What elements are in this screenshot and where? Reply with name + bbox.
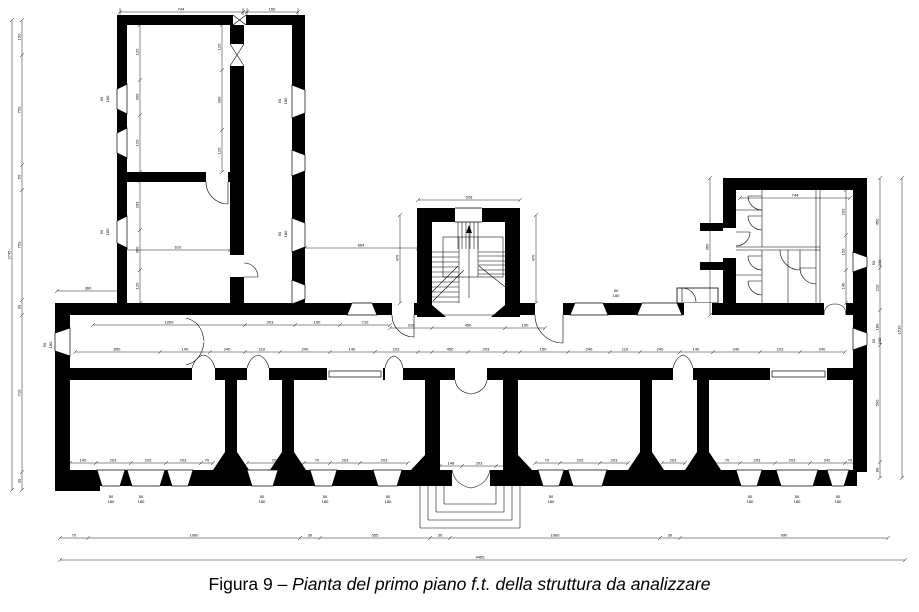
dimension-label: 590 [875, 399, 880, 406]
dimension-chain: 1510 [897, 176, 904, 480]
window-opening [292, 150, 305, 176]
window-opening [97, 470, 125, 486]
dimension-label: 203 [135, 201, 140, 208]
annotation-label: 180 [259, 499, 266, 504]
door-gap [392, 303, 414, 315]
window-opening [347, 303, 377, 315]
dimension-label: 528 [466, 195, 473, 200]
dimension-label: 120 [135, 139, 140, 146]
dimension-label: 203 [476, 461, 483, 466]
dimension-label: 110 [622, 347, 629, 352]
door-swing [673, 355, 693, 368]
annotation-label: 180 [794, 499, 801, 504]
dimension-label: 240 [733, 347, 740, 352]
dimension-label: 450 [465, 323, 472, 328]
window-opening [167, 470, 193, 486]
dimension-label: 4465 [476, 555, 486, 560]
dimension-label: 203 [393, 347, 400, 352]
dimension-label: 203 [789, 458, 796, 463]
dimension-chain: 45021018059080 [875, 176, 882, 480]
dimension-label: 203 [577, 458, 584, 463]
dimension-label: 990 [781, 533, 788, 538]
door-gap [452, 470, 490, 486]
annotation-label: 180 [283, 97, 288, 104]
dimension-chain: 318450100 [388, 323, 547, 330]
dimension-label: 70 [72, 533, 77, 538]
window-opening [736, 470, 762, 486]
dimension-label: 555 [372, 533, 379, 538]
dimension-label: 390 [217, 96, 222, 103]
dimension-label: 150 [540, 347, 547, 352]
dimension-chain: 203390120 [135, 179, 142, 305]
dimension-label: 140 [349, 347, 356, 352]
dimension-label: 710 [17, 389, 22, 396]
dimension-label: 360 [85, 286, 92, 291]
door-gap [385, 368, 403, 380]
dimension-label: 390 [135, 246, 140, 253]
door-swing [192, 355, 215, 368]
dimension-label: 30 [17, 478, 22, 483]
dimension-label: 110 [259, 347, 266, 352]
annotation-label: 180 [105, 228, 110, 235]
door-swing [206, 182, 228, 204]
dimension-label: 203 [180, 458, 187, 463]
annotation-label: 50 [277, 231, 282, 236]
exterior-walls [55, 15, 867, 491]
classroom-piers [213, 380, 721, 470]
annotation-label: 180 [48, 341, 53, 348]
annotation-label: 180 [613, 293, 620, 298]
dimension-chain: 70203203 [533, 458, 630, 465]
dimension-label: 240 [819, 347, 826, 352]
dimension-label: 140 [182, 347, 189, 352]
door-swing [748, 256, 762, 270]
dimension-label: 150 [841, 248, 846, 255]
annotation-label: 180 [385, 499, 392, 504]
door-gap [192, 368, 215, 380]
annotation-label: 50 [277, 98, 282, 103]
dimension-chain: 4465 [58, 555, 907, 562]
dimension-label: 710 [362, 320, 369, 325]
door-gap [455, 368, 487, 380]
dimension-label: 30 [438, 533, 443, 538]
dimension-chain: 14020320320370 [68, 458, 215, 465]
door-gap [247, 368, 269, 380]
window-opening [373, 470, 402, 486]
dimension-chain: 360 [55, 286, 122, 293]
window-opening [637, 303, 682, 315]
dimension-chain: 664 [303, 243, 420, 250]
dimension-label: 203 [483, 347, 490, 352]
door-swing [455, 380, 487, 394]
dimension-label: 744 [792, 193, 799, 198]
dimension-label: 30 [17, 304, 22, 309]
dimension-label: 70 [725, 458, 730, 463]
dimension-label: 850 [114, 347, 121, 352]
door-gap [673, 368, 693, 380]
annotation-label: 180 [108, 499, 115, 504]
window-opening [568, 470, 607, 486]
door-swing [247, 355, 269, 368]
door-swing [244, 263, 258, 277]
dimension-label: 750 [17, 106, 22, 113]
door-gap [684, 303, 712, 315]
dimension-chain: 203150140 [841, 188, 848, 305]
dimension-label: 240 [302, 347, 309, 352]
door-gap [230, 255, 244, 277]
dimension-label: 120 [217, 43, 222, 50]
window-strip-frame [329, 371, 381, 377]
dimension-chain: 2745 [7, 18, 14, 492]
dimension-chain: 120390120 [135, 23, 142, 174]
dimension-chain: 120390120 [217, 23, 224, 174]
dimension-chain: 470 [395, 213, 402, 305]
dimension-label: 70 [848, 458, 853, 463]
annotation-label: 180 [138, 499, 145, 504]
dimension-label: 120 [135, 48, 140, 55]
dimension-label: 180 [875, 323, 880, 330]
window-opening [570, 303, 608, 315]
window-opening [247, 470, 278, 486]
dimension-label: 1060 [551, 533, 561, 538]
page: 7441505287446646103601269203150710318450… [0, 0, 919, 612]
dimension-label: 150 [269, 7, 276, 12]
annotation-label: 240 [877, 337, 882, 344]
dimension-label: 240 [224, 347, 231, 352]
annotation-label: 50 [99, 96, 104, 101]
dimension-label: 450 [447, 347, 454, 352]
dimension-chain: 7010603055530106030990 [58, 533, 890, 540]
annotation-label: 180 [105, 95, 110, 102]
door-gap [206, 172, 228, 182]
dimension-chain: 8501402401102401402034502031502401102401… [73, 347, 847, 354]
dimension-label: 150 [314, 320, 321, 325]
dimension-label: 148 [504, 461, 511, 466]
dimension-label: 242 [824, 458, 831, 463]
door-gap [824, 303, 846, 315]
dimension-label: 470 [395, 254, 400, 261]
door-swing [800, 268, 816, 284]
dimension-label: 70 [205, 458, 210, 463]
figure-caption: Figura 9 – Pianta del primo piano f.t. d… [0, 574, 919, 595]
dimension-chain: 150750507503071030 [17, 18, 24, 492]
interior-partitions [677, 190, 820, 303]
figure-caption-prefix: Figura 9 – [209, 574, 293, 594]
annotation-label: 50 [42, 342, 47, 347]
window-opening [310, 470, 337, 486]
dimension-label: 210 [875, 284, 880, 291]
window-opening [117, 84, 127, 114]
dimension-label: 1060 [190, 533, 200, 538]
dimension-label: 360 [705, 243, 710, 250]
dimension-label: 140 [693, 347, 700, 352]
dimension-label: 664 [358, 243, 365, 248]
window-opening [117, 216, 127, 248]
dimension-chain: 744 [738, 193, 852, 200]
annotation-label: 180 [835, 499, 842, 504]
window-opening [127, 470, 165, 486]
door-swing [385, 356, 403, 368]
window-strip-frame [772, 371, 825, 377]
dimension-label: 70 [315, 458, 320, 463]
dimension-label: 318 [408, 323, 415, 328]
dimension-chain: 7020320324270 [712, 458, 857, 465]
dimension-label: 203 [754, 458, 761, 463]
window-opening [292, 218, 305, 252]
dimension-label: 120 [135, 282, 140, 289]
dimension-label: 240 [586, 347, 593, 352]
annotation-label: 240 [877, 259, 882, 266]
dimension-label: 30 [668, 533, 673, 538]
annotation-label: 180 [548, 499, 555, 504]
dimension-label: 750 [17, 241, 22, 248]
dimension-label: 1510 [897, 325, 902, 335]
door-gap [723, 228, 736, 258]
dimension-label: 240 [657, 347, 664, 352]
dimension-label: 30 [308, 533, 313, 538]
door-swing [780, 250, 800, 270]
dimension-chain: 528 [416, 195, 522, 202]
dimension-label: 744 [178, 7, 185, 12]
entrance-steps [420, 486, 520, 528]
door-swing [748, 281, 762, 295]
window-opening [117, 128, 127, 158]
annotation-label: 180 [322, 499, 329, 504]
dimension-label: 1269 [165, 320, 175, 325]
annotation-label: 50 [99, 229, 104, 234]
dimension-label: 203 [272, 458, 279, 463]
window-opening [55, 328, 70, 356]
dimension-label: 203 [611, 458, 618, 463]
dimension-label: 148 [448, 461, 455, 466]
dimension-label: 610 [175, 245, 182, 250]
dimension-chain: 203 [660, 458, 687, 465]
window-opening [776, 470, 818, 486]
window-opening [538, 470, 564, 486]
dimension-label: 140 [841, 282, 846, 289]
drawing-sheet: 7441505287446646103601269203150710318450… [0, 0, 919, 568]
dimension-label: 203 [145, 458, 152, 463]
door-swing [736, 232, 750, 246]
dimension-label: 203 [381, 458, 388, 463]
door-gap [535, 303, 563, 315]
figure-caption-title: Pianta del primo piano f.t. della strutt… [292, 574, 710, 594]
dimension-label: 120 [217, 147, 222, 154]
annotation-label: 50 [871, 260, 876, 265]
dimension-label: 140 [80, 458, 87, 463]
door-swing [748, 216, 762, 230]
floor-plan-figure: 7441505287446646103601269203150710318450… [0, 0, 919, 568]
dimension-label: 2745 [7, 250, 12, 260]
annotation-label: 180 [747, 499, 754, 504]
dimension-label: 100 [522, 323, 529, 328]
stair-core [427, 208, 509, 315]
dimension-label: 150 [17, 33, 22, 40]
dimension-chain: 470 [531, 213, 538, 305]
dimension-chain: 70203203 [302, 458, 410, 465]
dimension-chain: 744150 [118, 7, 300, 14]
annotation-label: 180 [283, 230, 288, 237]
dimension-label: 203 [342, 458, 349, 463]
dimension-label: 203 [267, 320, 274, 325]
dimension-label: 203 [841, 208, 846, 215]
dimension-label: 450 [875, 218, 880, 225]
dimension-label: 470 [531, 254, 536, 261]
dimension-label: 70 [545, 458, 550, 463]
door-swing [535, 315, 563, 343]
annotation-label: 50 [871, 338, 876, 343]
dimension-label: 390 [135, 93, 140, 100]
dimension-label: 80 [875, 467, 880, 472]
window-opening [292, 85, 305, 118]
dimension-label: 203 [110, 458, 117, 463]
dimension-chain: 1269203150710 [91, 320, 392, 327]
dimension-label: 203 [777, 347, 784, 352]
dimension-label: 203 [670, 458, 677, 463]
dimension-label: 50 [17, 174, 22, 179]
